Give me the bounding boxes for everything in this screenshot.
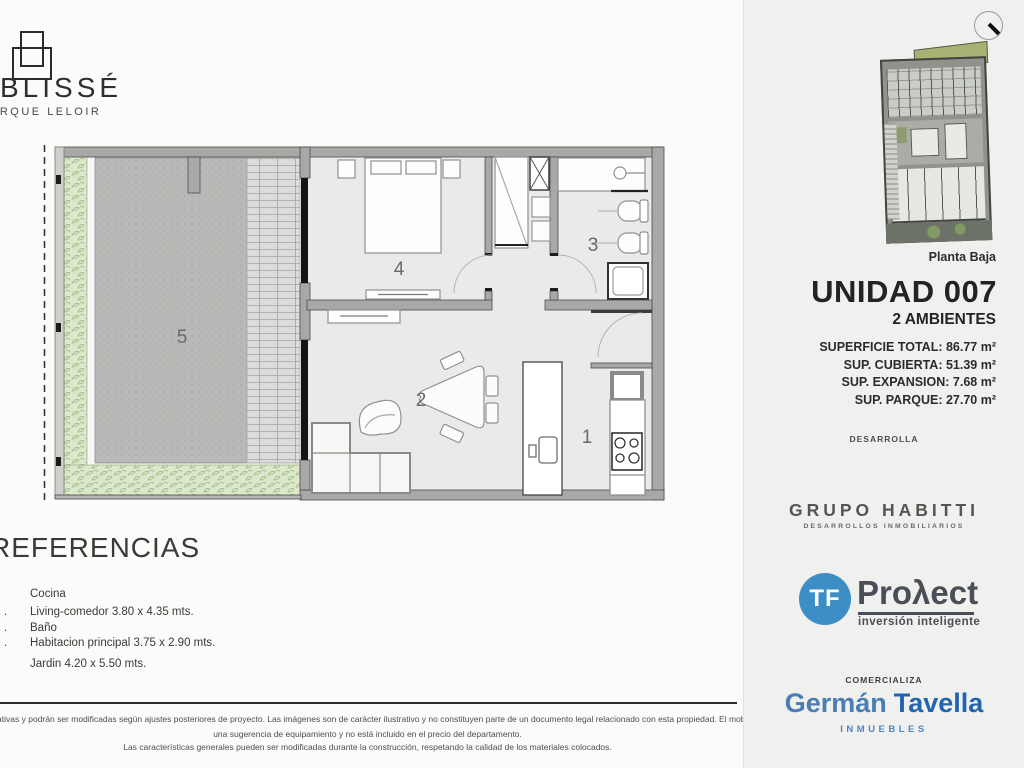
surface-list: SUPERFICIE TOTAL: 86.77 m² SUP. CUBIERTA… xyxy=(819,339,996,409)
room-label-garden: 5 xyxy=(177,327,188,348)
broker-last-name: Tavella xyxy=(894,688,984,718)
unit-title: UNIDAD 007 xyxy=(811,274,997,310)
wall-hall-right xyxy=(550,157,558,255)
wall-pillar xyxy=(188,157,200,193)
wall-hall-right-stub xyxy=(550,291,558,300)
wall-entry-bottom xyxy=(591,363,652,368)
glass-wall-living xyxy=(301,340,308,460)
laundry-cabinet-2 xyxy=(532,221,550,241)
developer-heading: DESARROLLA xyxy=(744,434,1024,444)
thumb-garden-band xyxy=(886,220,993,244)
reference-number-dot: . xyxy=(4,622,7,634)
wall-top xyxy=(55,147,662,157)
chair-right-2 xyxy=(486,403,498,423)
brand-subtitle: PARQUE LELOIR xyxy=(0,106,101,118)
reference-label: Cocina xyxy=(30,588,66,600)
room-label-bedroom: 4 xyxy=(394,259,405,280)
compass-needle-icon xyxy=(988,23,1001,36)
sheet-main: BLISSÉ PARQUE LELOIR xyxy=(0,0,744,768)
broker-tagline: INMUEBLES xyxy=(744,724,1024,735)
unit-subtitle: 2 AMBIENTES xyxy=(892,311,996,329)
nightstand-left xyxy=(338,160,355,178)
garden-lawn xyxy=(95,158,247,463)
partner-tagline: inversión inteligente xyxy=(858,616,980,628)
toilet-icon xyxy=(618,201,642,221)
chair-right-1 xyxy=(486,376,498,396)
reference-label: Jardin 4.20 x 5.50 mts. xyxy=(30,658,146,670)
room-label-kitchen: 1 xyxy=(582,427,593,448)
room-label-living: 2 xyxy=(416,390,427,411)
thumb-unit-white xyxy=(944,123,967,160)
building-plan-thumbnail xyxy=(874,42,995,248)
laundry-cabinet xyxy=(532,197,550,217)
planting-strip-bottom xyxy=(64,465,300,497)
wall-stub-top xyxy=(300,147,310,178)
garden-area xyxy=(64,155,300,497)
partner-divider xyxy=(858,612,974,615)
broker-heading: COMERCIALIZA xyxy=(744,675,1024,685)
wall-bath-bottom xyxy=(545,300,652,310)
floor-plan: 5 4 3 2 1 xyxy=(43,145,665,502)
partner-name: Proλect xyxy=(857,574,978,612)
brand-logo-square-small-icon xyxy=(20,31,44,67)
wall-garden-bottom xyxy=(55,495,301,499)
faucet-icon xyxy=(529,445,536,457)
pillow-right xyxy=(406,161,436,174)
glass-wall-bedroom xyxy=(301,178,308,283)
thumb-core xyxy=(888,118,983,165)
pillow-left xyxy=(371,161,401,174)
references-title: REFERENCIAS xyxy=(0,532,200,564)
info-sidebar: Planta Baja UNIDAD 007 2 AMBIENTES SUPER… xyxy=(743,0,1024,768)
surface-expansion: SUP. EXPANSION: 7.68 m² xyxy=(819,374,996,392)
footer-divider xyxy=(0,702,737,704)
thumb-units-bottom xyxy=(890,166,986,223)
north-compass-icon xyxy=(974,11,1003,40)
wood-deck xyxy=(247,158,300,463)
wall-hall-left xyxy=(485,157,492,255)
grupo-habitti-logo-icon xyxy=(846,446,922,498)
planting-strip-left xyxy=(64,155,87,497)
wall-hall-left-stub xyxy=(485,291,492,300)
wall-right xyxy=(652,147,664,500)
reference-label: Habitacion principal 3.75 x 2.90 mts. xyxy=(30,637,215,649)
broker-name: GermánTavella xyxy=(744,688,1024,719)
reference-number-dot: . xyxy=(4,606,7,618)
wall-left xyxy=(55,147,64,497)
developer-tagline: DESARROLLOS INMOBILIARIOS xyxy=(744,523,1024,530)
wall-stub-bottom xyxy=(300,460,310,490)
reference-label: Living-comedor 3.80 x 4.35 mts. xyxy=(30,606,194,618)
nightstand-right xyxy=(443,160,460,178)
reference-label: Baño xyxy=(30,622,57,634)
brand-name: BLISSÉ xyxy=(0,72,122,104)
wall-stub-mid xyxy=(300,283,310,340)
surface-total: SUPERFICIE TOTAL: 86.77 m² xyxy=(819,339,996,357)
thumb-unit-white xyxy=(910,128,939,157)
reference-number-dot: . xyxy=(4,637,7,649)
thumbnail-caption: Planta Baja xyxy=(929,250,996,264)
bidet-icon xyxy=(618,233,642,253)
refrigerator xyxy=(612,373,642,400)
tf-logo-icon: TF xyxy=(799,573,851,625)
kitchen-island xyxy=(523,362,562,495)
room-label-bathroom: 3 xyxy=(588,235,599,256)
surface-parque: SUP. PARQUE: 27.70 m² xyxy=(819,392,996,410)
wall-bedroom-bottom xyxy=(307,300,492,310)
disclaimer-line: Las medidas son indicativas y podrán ser… xyxy=(0,714,744,724)
cooktop xyxy=(612,433,642,470)
vanity xyxy=(558,158,645,191)
disclaimer-line: una sugerencia de equipamiento y no está… xyxy=(0,729,744,739)
broker-first-name: Germán xyxy=(785,688,887,718)
service-shaft xyxy=(530,157,550,241)
island-sink-icon xyxy=(539,437,557,463)
developer-name: GRUPO HABITTI xyxy=(744,500,1024,521)
surface-cubierta: SUP. CUBIERTA: 51.39 m² xyxy=(819,357,996,375)
thumb-units-top xyxy=(886,66,982,117)
disclaimer-line: Las características generales pueden ser… xyxy=(0,742,744,752)
